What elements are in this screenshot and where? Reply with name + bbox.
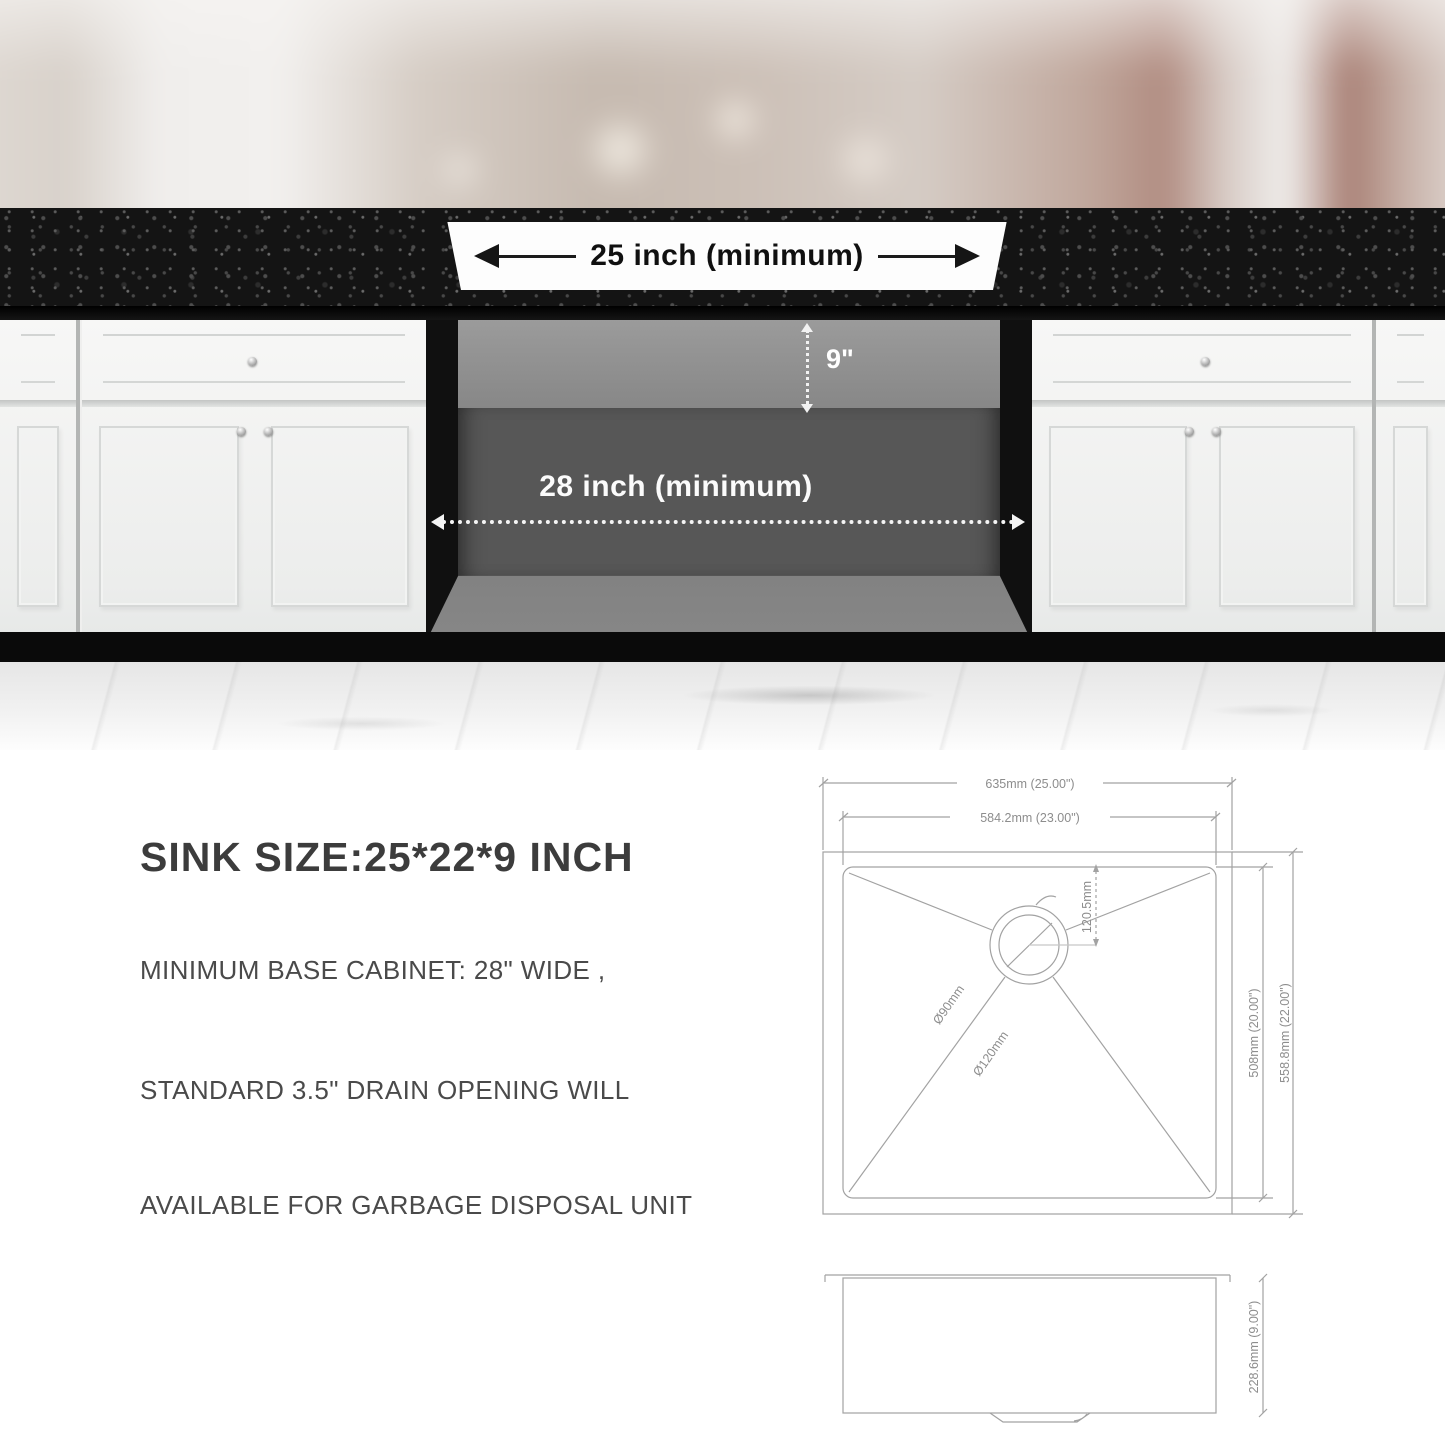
cabinet-right-main bbox=[1032, 320, 1372, 632]
opening-back-upper bbox=[458, 320, 1000, 408]
cabinet-rail bbox=[0, 400, 76, 407]
drawing-lines bbox=[819, 777, 1303, 1422]
spec-line-base-cabinet: MINIMUM BASE CABINET: 28" WIDE , bbox=[140, 955, 606, 986]
dim-side-height-label: 228.6mm (9.00") bbox=[1247, 1301, 1261, 1394]
width-dimension-line bbox=[442, 520, 1014, 524]
drawer-knob bbox=[1201, 357, 1210, 366]
arrow-up-icon bbox=[801, 323, 813, 332]
sink-dimension-infographic: 25 inch (minimum) bbox=[0, 0, 1445, 1445]
marble-strip bbox=[0, 662, 1445, 750]
dimension-line bbox=[878, 255, 955, 258]
cabinet-rail bbox=[82, 400, 426, 407]
toe-kick-band bbox=[0, 632, 1445, 662]
height-dimension-line bbox=[806, 330, 809, 404]
dim-drain-offset-label: 120.5mm bbox=[1080, 881, 1094, 933]
countertop-width-label: 25 inch (minimum) bbox=[576, 239, 878, 273]
door-panel bbox=[271, 426, 409, 607]
spec-line-garbage-disposal: AVAILABLE FOR GARBAGE DISPOSAL UNIT bbox=[140, 1190, 692, 1221]
drawer-front bbox=[1379, 324, 1442, 396]
drawer-panel-line bbox=[1397, 334, 1424, 383]
dim-drain-diameter-large-label: Ø120mm bbox=[970, 1029, 1011, 1079]
cabinet-rail bbox=[1032, 400, 1372, 407]
door-panel bbox=[99, 426, 239, 607]
dim-drain-diameter-small-label: Ø90mm bbox=[930, 982, 967, 1026]
drawer-panel-line bbox=[21, 334, 55, 383]
door-knob bbox=[1212, 427, 1221, 436]
drawer-knob bbox=[248, 357, 257, 366]
countertop-shadow bbox=[0, 306, 1445, 320]
kitchen-background-blur bbox=[0, 0, 1445, 214]
cabinet-left-partial bbox=[0, 320, 76, 632]
dim-arrow-down-icon bbox=[1093, 939, 1099, 947]
door-panel bbox=[17, 426, 59, 607]
cabinet-rail bbox=[1376, 400, 1445, 407]
kitchen-background-photo bbox=[0, 0, 1445, 214]
opening-width-label: 28 inch (minimum) bbox=[426, 470, 926, 504]
door-knob bbox=[264, 427, 273, 436]
cabinet-right-partial bbox=[1376, 320, 1445, 632]
cabinet-door-left bbox=[1035, 410, 1201, 627]
dim-inner-depth-label: 508mm (20.00") bbox=[1247, 988, 1261, 1077]
arrow-right-icon bbox=[1012, 514, 1025, 530]
cabinet-door bbox=[1379, 410, 1442, 627]
base-cabinet-row: 9" 28 inch (minimum) bbox=[0, 320, 1445, 632]
door-panel bbox=[1049, 426, 1187, 607]
dimension-line bbox=[499, 255, 576, 258]
drawer-front bbox=[3, 324, 73, 396]
sink-size-title: SINK SIZE:25*22*9 INCH bbox=[140, 834, 634, 881]
dim-inner-width-label: 584.2mm (23.00") bbox=[980, 811, 1080, 825]
drawer-front bbox=[85, 324, 423, 396]
cabinet-door-right bbox=[257, 410, 423, 627]
arrow-right-icon bbox=[955, 244, 980, 268]
sink-cabinet-opening: 9" 28 inch (minimum) bbox=[426, 320, 1032, 632]
dim-outer-width-label: 635mm (25.00") bbox=[985, 777, 1074, 791]
arrow-left-icon bbox=[431, 514, 444, 530]
dim-outer-depth-label: 558.8mm (22.00") bbox=[1278, 983, 1292, 1083]
cabinet-left-main bbox=[82, 320, 426, 632]
countertop-width-banner: 25 inch (minimum) bbox=[444, 222, 1010, 290]
cabinet-door bbox=[3, 410, 73, 627]
door-knob bbox=[237, 427, 246, 436]
dim-arrow-up-icon bbox=[1093, 864, 1099, 872]
sink-technical-drawing: 635mm (25.00") 584.2mm (23.00") 508mm (2… bbox=[780, 755, 1445, 1445]
door-knob bbox=[1185, 427, 1194, 436]
arrow-left-icon bbox=[474, 244, 499, 268]
drawer-front bbox=[1035, 324, 1369, 396]
arrow-down-icon bbox=[801, 404, 813, 413]
cabinet-door-right bbox=[1205, 410, 1369, 627]
door-panel bbox=[1393, 426, 1428, 607]
spec-line-drain-opening: STANDARD 3.5" DRAIN OPENING WILL bbox=[140, 1075, 630, 1106]
opening-height-label: 9" bbox=[826, 344, 854, 375]
door-panel bbox=[1219, 426, 1355, 607]
cabinet-door-left bbox=[85, 410, 253, 627]
cabinet-gap bbox=[76, 320, 80, 632]
